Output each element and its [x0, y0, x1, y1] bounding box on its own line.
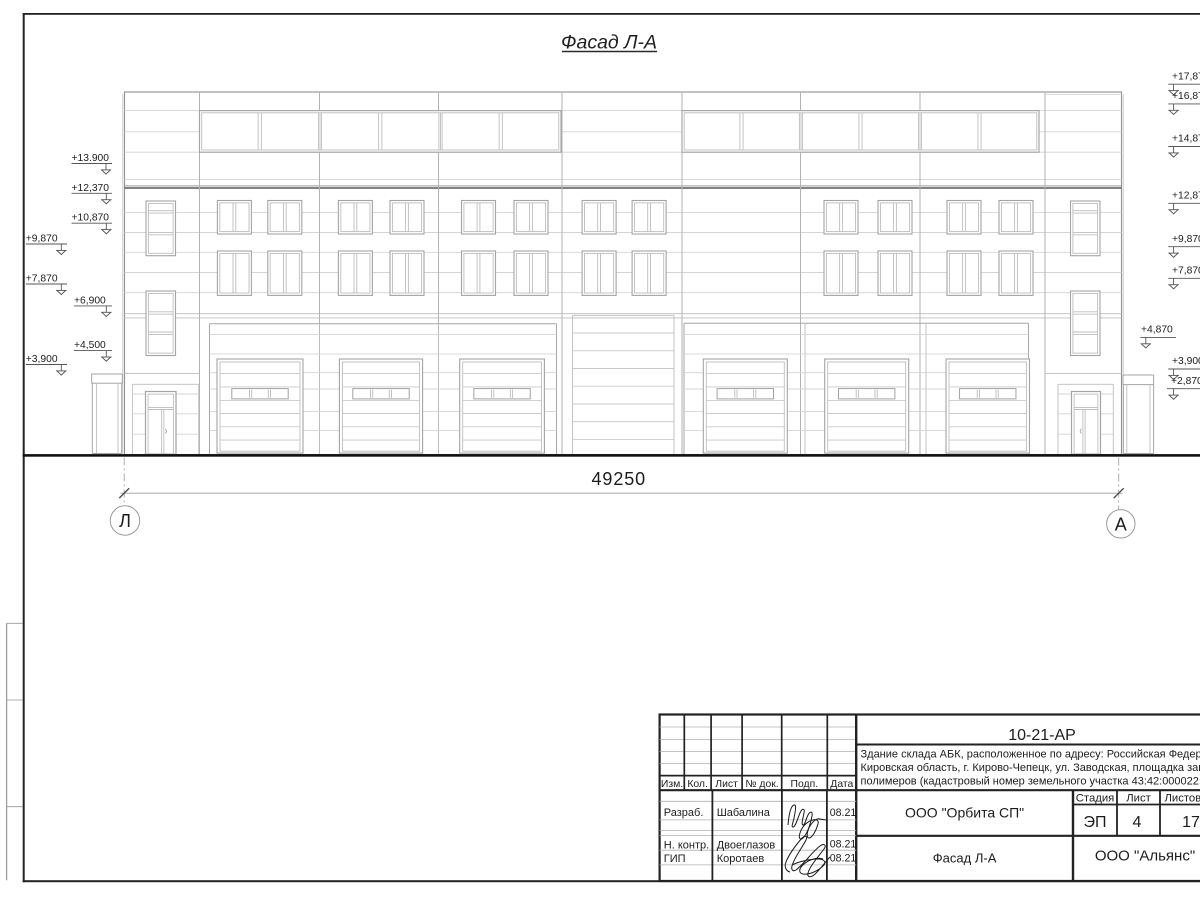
svg-text:08.21: 08.21: [830, 807, 857, 819]
svg-text:Разраб.: Разраб.: [664, 807, 704, 819]
svg-text:10-21-АР: 10-21-АР: [1008, 727, 1076, 744]
svg-text:Здание склада АБК, расположенн: Здание склада АБК, расположенное по адре…: [861, 749, 1200, 761]
svg-text:+9,870: +9,870: [1172, 234, 1200, 245]
svg-text:Н. контр.: Н. контр.: [664, 839, 709, 851]
svg-text:Фасад Л-А: Фасад Л-А: [561, 32, 657, 54]
svg-text:+9,870: +9,870: [26, 234, 58, 245]
svg-text:+12,370: +12,370: [72, 183, 110, 194]
svg-text:Дата: Дата: [830, 779, 853, 790]
svg-text:полимеров (кадастровый номер з: полимеров (кадастровый номер земельного …: [861, 776, 1200, 788]
svg-text:+7,870: +7,870: [1172, 266, 1200, 277]
svg-text:+13.900: +13.900: [72, 153, 110, 164]
svg-text:Л: Л: [119, 511, 131, 531]
svg-text:08.21: 08.21: [830, 838, 857, 850]
svg-text:Фасад Л-А: Фасад Л-А: [933, 850, 997, 865]
svg-text:Подп.: Подп.: [790, 779, 818, 790]
svg-text:+16,870: +16,870: [1172, 91, 1200, 102]
svg-text:Лист: Лист: [715, 779, 738, 790]
svg-text:+3,900: +3,900: [26, 354, 58, 365]
svg-text:+4,870: +4,870: [1141, 325, 1173, 336]
svg-text:Изм.: Изм.: [661, 779, 683, 790]
svg-text:49250: 49250: [592, 469, 647, 489]
svg-text:4: 4: [1133, 814, 1142, 831]
svg-text:+4,500: +4,500: [74, 340, 106, 351]
svg-text:ООО "Альянс": ООО "Альянс": [1095, 848, 1195, 865]
svg-text:Кировская область, г. Кирово-Ч: Кировская область, г. Кирово-Чепецк, ул.…: [861, 762, 1200, 774]
svg-text:ГИП: ГИП: [664, 853, 686, 865]
svg-text:+2,870: +2,870: [1171, 376, 1200, 387]
svg-text:+6,900: +6,900: [74, 295, 106, 306]
svg-text:+12,870: +12,870: [1172, 191, 1200, 202]
svg-text:Лист: Лист: [1126, 793, 1151, 805]
svg-text:+17,870: +17,870: [1172, 71, 1200, 82]
svg-text:Шабалина: Шабалина: [717, 807, 771, 819]
svg-text:ЭП: ЭП: [1084, 814, 1107, 831]
svg-text:Кол.: Кол.: [687, 779, 708, 790]
svg-text:А: А: [1115, 514, 1127, 534]
svg-text:Двоеглазов: Двоеглазов: [717, 839, 776, 851]
svg-text:+3,900: +3,900: [1172, 356, 1200, 367]
svg-text:+7,870: +7,870: [26, 274, 58, 285]
svg-text:+10,870: +10,870: [72, 213, 110, 224]
svg-text:№ док.: № док.: [745, 779, 778, 790]
svg-text:Стадия: Стадия: [1076, 793, 1115, 805]
svg-text:08.21: 08.21: [830, 853, 857, 865]
svg-text:+14,870: +14,870: [1172, 134, 1200, 145]
svg-text:ООО "Орбита СП": ООО "Орбита СП": [905, 804, 1024, 820]
svg-text:Коротаев: Коротаев: [717, 853, 765, 865]
svg-text:Листов: Листов: [1165, 793, 1200, 805]
svg-text:17: 17: [1182, 814, 1200, 831]
